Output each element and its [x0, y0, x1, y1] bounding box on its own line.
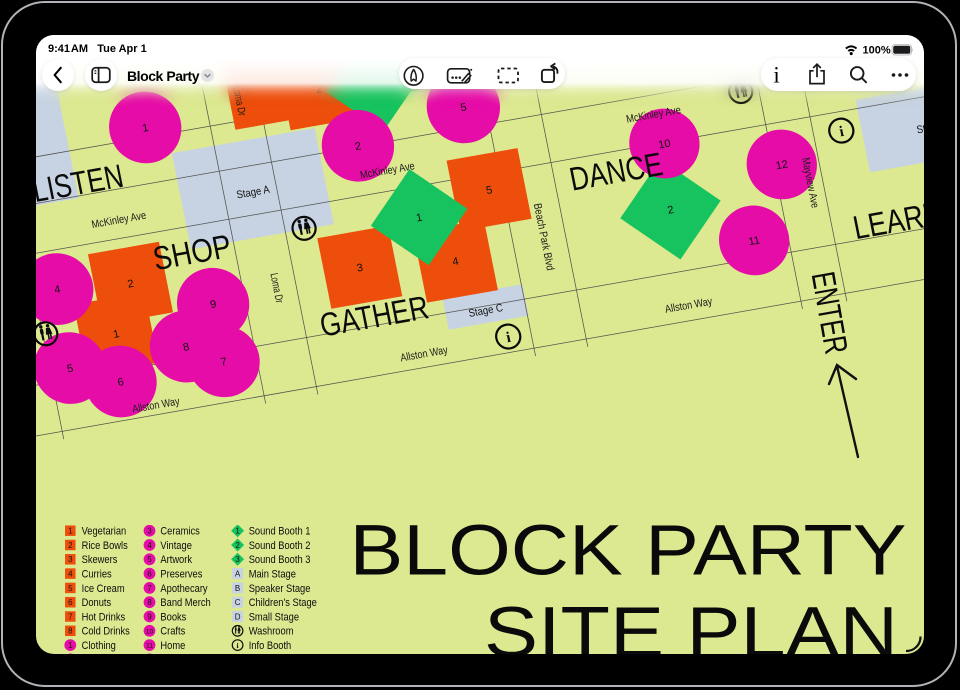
svg-text:Band Merch: Band Merch [160, 597, 210, 609]
svg-text:Donuts: Donuts [82, 597, 112, 609]
svg-text:i: i [237, 641, 239, 650]
svg-text:Home: Home [160, 640, 185, 652]
svg-text:i: i [773, 63, 779, 88]
svg-text:Sound Booth 1: Sound Booth 1 [249, 526, 311, 538]
svg-text:9: 9 [147, 612, 152, 621]
svg-text:B: B [235, 584, 240, 593]
svg-text:2: 2 [235, 541, 240, 550]
svg-text:2: 2 [68, 541, 73, 550]
svg-text:1: 1 [68, 641, 73, 650]
svg-text:4: 4 [147, 541, 152, 550]
svg-text:Rice Bowls: Rice Bowls [82, 540, 128, 552]
svg-text:Skewers: Skewers [82, 555, 118, 567]
svg-text:Main Stage: Main Stage [249, 569, 297, 581]
svg-text:7: 7 [68, 612, 73, 621]
svg-text:5: 5 [68, 584, 73, 593]
svg-text:8: 8 [68, 627, 73, 636]
svg-text:8: 8 [147, 598, 152, 607]
svg-text:4: 4 [68, 570, 73, 579]
svg-text:11: 11 [146, 643, 153, 650]
svg-text:C: C [235, 598, 241, 607]
svg-text:BLOCK PARTY: BLOCK PARTY [350, 512, 907, 591]
svg-text:3: 3 [147, 527, 152, 536]
svg-text:Apothecary: Apothecary [160, 583, 208, 595]
svg-text:Preserves: Preserves [160, 569, 202, 581]
svg-text:Hot Drinks: Hot Drinks [82, 612, 126, 624]
svg-text:Sound Booth 2: Sound Booth 2 [249, 540, 311, 552]
svg-text:Washroom: Washroom [249, 626, 294, 638]
svg-text:3: 3 [235, 555, 240, 564]
svg-text:Small Stage: Small Stage [249, 612, 300, 624]
svg-text:6: 6 [68, 598, 73, 607]
svg-text:SITE PLAN: SITE PLAN [484, 594, 898, 655]
svg-text:A: A [235, 570, 241, 579]
svg-text:Info Booth: Info Booth [249, 640, 292, 652]
svg-text:Vegetarian: Vegetarian [82, 526, 127, 538]
svg-text:Clothing: Clothing [82, 640, 117, 652]
svg-text:100%: 100% [863, 45, 891, 57]
svg-text:7: 7 [147, 584, 152, 593]
svg-text:Vintage: Vintage [160, 540, 192, 552]
svg-text:Artwork: Artwork [160, 555, 192, 567]
svg-text:Cold Drinks: Cold Drinks [82, 626, 130, 638]
svg-text:6: 6 [147, 570, 152, 579]
svg-text:5: 5 [147, 555, 152, 564]
svg-text:3: 3 [68, 555, 73, 564]
svg-text:Children's Stage: Children's Stage [249, 597, 317, 609]
svg-text:Crafts: Crafts [160, 626, 185, 638]
svg-text:Ice Cream: Ice Cream [82, 583, 125, 595]
svg-text:Curries: Curries [82, 569, 112, 581]
svg-text:Sound Booth 3: Sound Booth 3 [249, 555, 311, 567]
svg-text:Ceramics: Ceramics [160, 526, 199, 538]
svg-text:1: 1 [235, 527, 240, 536]
svg-text:1: 1 [68, 527, 73, 536]
svg-text:10: 10 [146, 628, 154, 635]
svg-text:Speaker Stage: Speaker Stage [249, 583, 311, 595]
svg-text:D: D [235, 612, 241, 621]
svg-text:Books: Books [160, 612, 186, 624]
